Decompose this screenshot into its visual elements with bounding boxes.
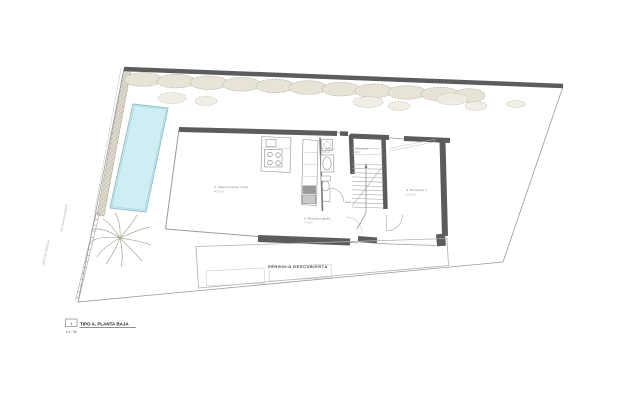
title-scale: e 1 : 50: [66, 330, 77, 334]
stair-arrow-head: [364, 163, 367, 168]
pergola-paving-1: [206, 268, 265, 286]
room-label-recibidor: A. Recibidor pasillo: [304, 217, 331, 221]
threshold-slider: [350, 243, 358, 244]
glass-wall-west: [166, 129, 180, 229]
site-note-1: VALLADO EXISTENTE: [59, 204, 69, 232]
kitchen-sink: [266, 140, 276, 147]
title-block: 1 TIPO A. PLANTA BAJA e 1 : 50: [66, 319, 137, 334]
fence: [76, 213, 100, 302]
wall-top-living: [179, 130, 337, 134]
stair-break-line: [352, 166, 383, 206]
window-seg-2: [389, 138, 404, 139]
room-label-salon: S. Salón comedor cocina: [214, 185, 249, 189]
wall-bottom-main: [258, 239, 350, 243]
room-label-dormitorio: N. Dormitorio 1: [406, 188, 427, 192]
palm-tree: [89, 213, 151, 267]
title-number: 1: [70, 321, 73, 326]
room-area-dormitorio: 13.25 m²: [406, 194, 416, 197]
pillar: [441, 234, 442, 246]
floor-plan-drawing: S. Salón comedor cocina 44.35 m² A. Baño…: [0, 0, 630, 402]
toilet-bowl: [322, 181, 330, 191]
bedroom-door: [387, 215, 403, 231]
room-area-recibidor: 7.10 m²: [304, 222, 313, 225]
room-label-escalera: E. Escalera: [353, 147, 369, 151]
glass-wall-south: [166, 229, 259, 237]
appliance-fridge: [302, 195, 316, 204]
floor-plan-sheet: S. Salón comedor cocina 44.35 m² A. Baño…: [0, 0, 630, 402]
site-note-2: LÍMITE DE PARCELA: [41, 240, 50, 267]
toilet-tank: [321, 176, 331, 181]
wall-bedroom-right: [443, 141, 446, 236]
threshold-entry: [377, 244, 436, 246]
room-label-bano: A. Baño 1: [322, 147, 336, 151]
pergola-label: PÉRGOLA DESCUBIERTA: [268, 264, 328, 269]
wall-top-stair: [350, 136, 389, 138]
bathroom-door: [330, 188, 344, 202]
wall-bottom-stub: [358, 239, 377, 241]
kitchen: [261, 137, 318, 206]
room-area-bano: 4.05 m²: [322, 151, 331, 154]
closet-door-dashed: [346, 217, 362, 233]
wall-stair-bedroom: [384, 139, 386, 209]
room-area-escalera: 5.20 m²: [353, 151, 362, 154]
doors: [346, 215, 403, 233]
title-text: TIPO A. PLANTA BAJA: [80, 322, 129, 327]
appliance-oven: [303, 186, 317, 195]
room-area-salon: 44.35 m²: [214, 191, 224, 194]
palm-trunk: [118, 236, 121, 239]
wall-top-bedroom: [404, 139, 450, 141]
cooktop: [265, 150, 283, 168]
staircase: [352, 148, 383, 229]
